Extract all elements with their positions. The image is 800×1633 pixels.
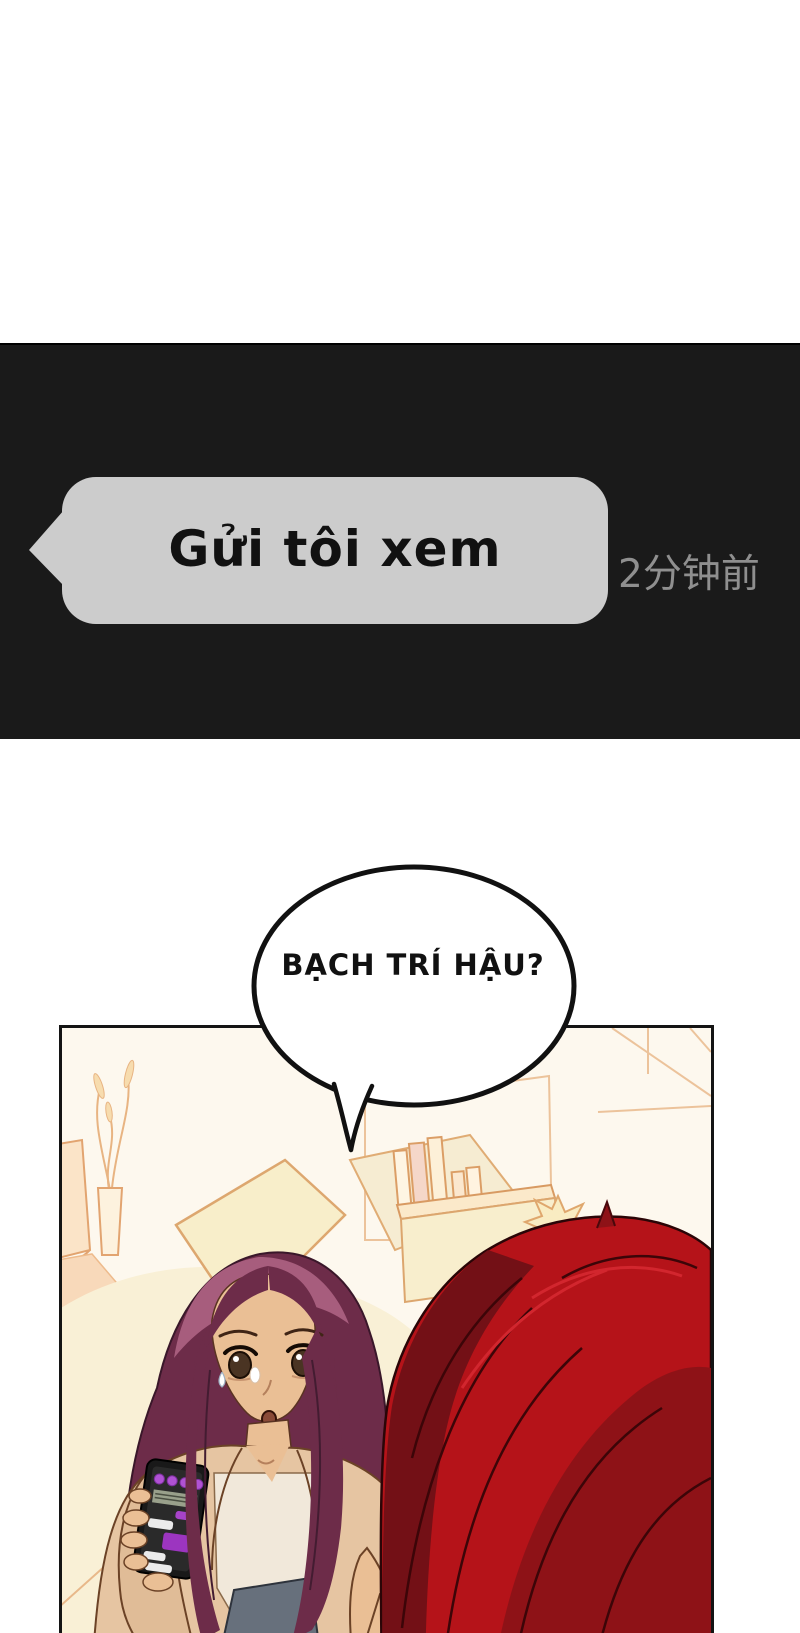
speech-bubble-text-box: BẠCH TRÍ HẬU? (258, 876, 568, 1054)
speech-bubble-text: BẠCH TRÍ HẬU? (281, 948, 544, 982)
comic-page: Gửi tôi xem 2分钟前 (0, 0, 800, 1633)
timestamp: 2分钟前 (618, 543, 798, 599)
chat-message-text: Gửi tôi xem (168, 520, 501, 578)
chat-message-bubble: Gửi tôi xem (62, 477, 608, 624)
sweat-drop (250, 1367, 260, 1383)
chat-bubble-tail-left (28, 510, 64, 586)
chat-panel: Gửi tôi xem 2分钟前 (0, 343, 800, 739)
